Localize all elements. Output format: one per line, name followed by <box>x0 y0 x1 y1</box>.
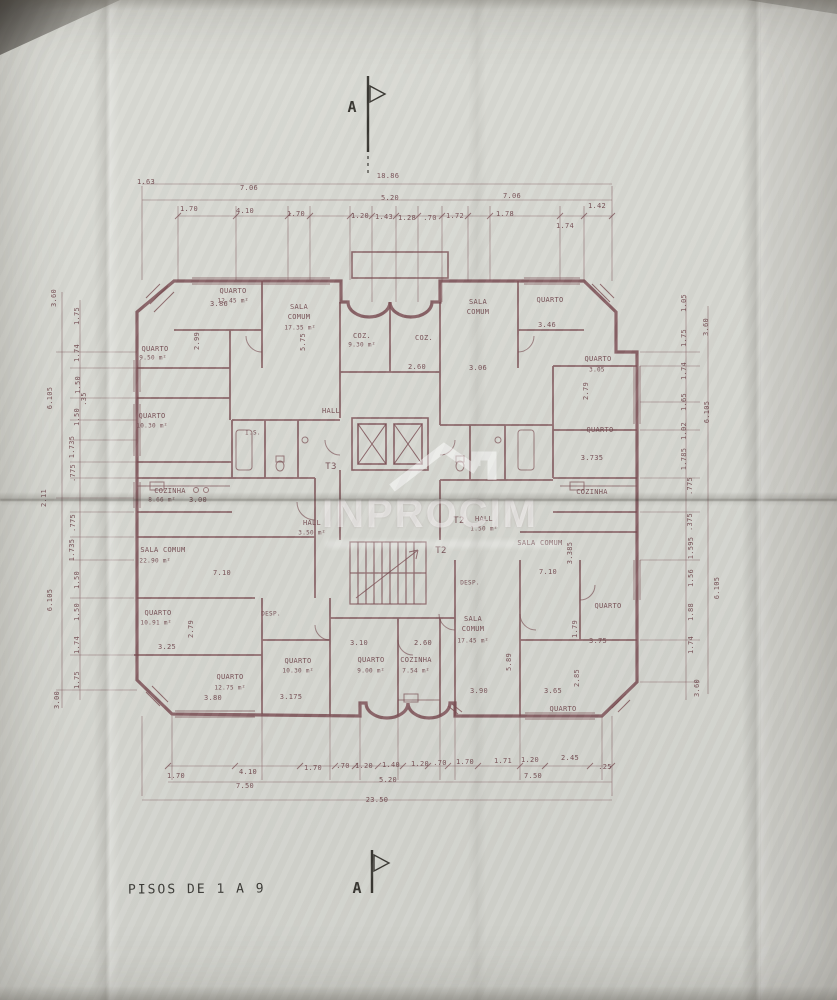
balcony-and-corner-hatch <box>146 252 630 714</box>
drawing-title: PISOS DE 1 A 9 <box>128 881 266 897</box>
section-marker-a-top: A <box>347 98 356 116</box>
interior-walls <box>134 281 637 716</box>
section-marker-lines <box>368 76 389 893</box>
windows <box>134 278 640 719</box>
door-arcs <box>246 336 595 655</box>
elevator-shaft <box>352 418 428 470</box>
photographed-floorplan-sheet: QUARTO12.45 m²SALACOMUM17.35 m²COZ.9.30 … <box>0 0 837 1000</box>
staircase <box>350 542 426 604</box>
exterior-walls <box>137 281 637 718</box>
floor-plan-drawing <box>0 0 837 1000</box>
section-marker-a-bottom: A <box>352 879 361 897</box>
